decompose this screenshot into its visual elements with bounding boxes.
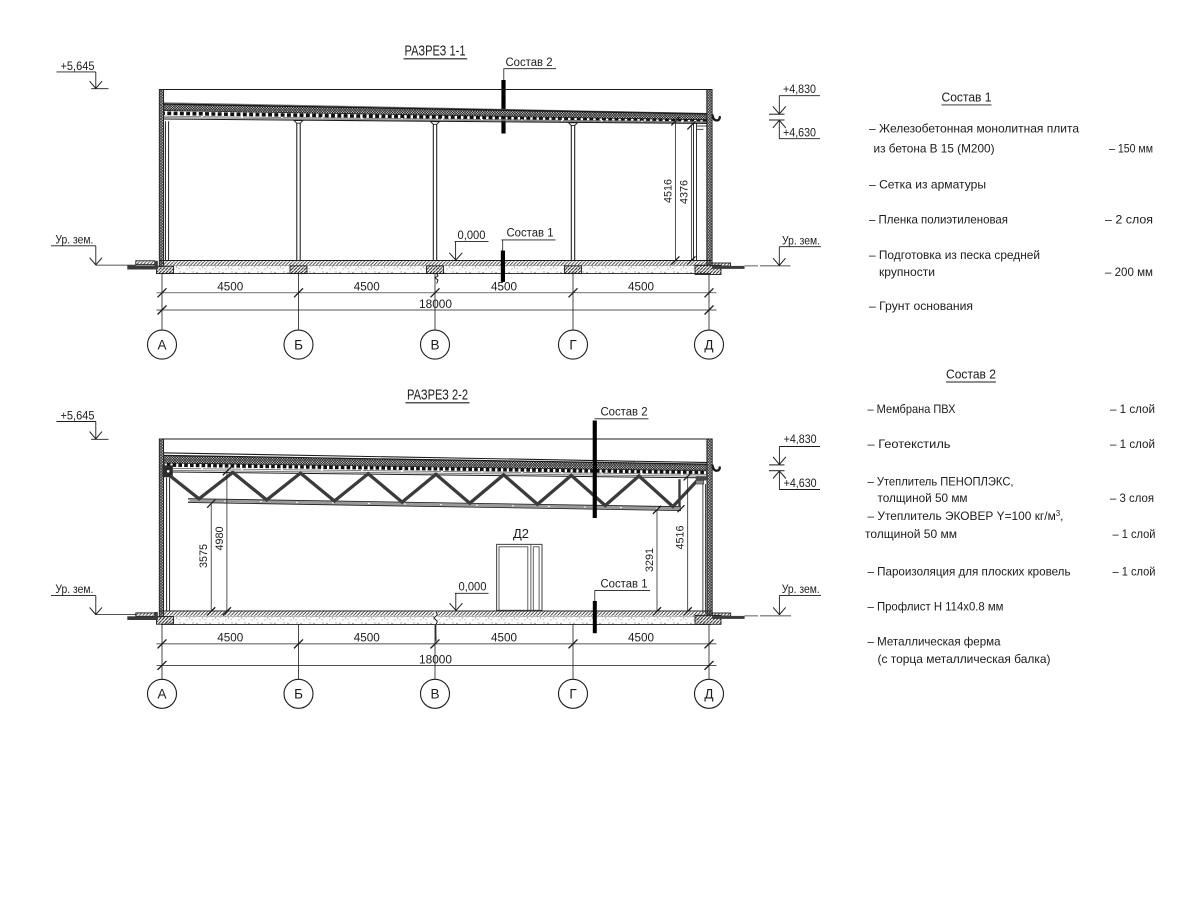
svg-text:4376: 4376 [678,180,690,204]
svg-text:Г: Г [569,687,577,702]
svg-text:+5,645: +5,645 [61,61,95,73]
svg-text:– Утеплитель ПЕНОПЛЭКС,: – Утеплитель ПЕНОПЛЭКС, [868,474,1014,488]
svg-text:4500: 4500 [491,282,517,294]
svg-text:РАЗРЕЗ 2-2: РАЗРЕЗ 2-2 [407,387,468,404]
svg-text:Ур. зем.: Ур. зем. [55,584,93,596]
svg-text:толщиной 50 мм: толщиной 50 мм [865,527,957,541]
svg-text:+4,830: +4,830 [783,84,816,96]
svg-text:– 1 слой: – 1 слой [1113,527,1156,541]
svg-text:– Сетка из арматуры: – Сетка из арматуры [869,178,986,192]
svg-text:Г: Г [569,337,577,352]
svg-text:Ур. зем.: Ур. зем. [55,234,93,246]
svg-text:– 2 слоя: – 2 слоя [1105,213,1153,227]
svg-text:– Профлист Н 114х0.8 мм: – Профлист Н 114х0.8 мм [868,599,1004,613]
svg-text:– Мембрана ПВХ: – Мембрана ПВХ [868,402,956,416]
svg-text:4500: 4500 [628,282,654,294]
svg-text:4980: 4980 [214,527,226,551]
svg-text:– Пленка полиэтиленовая: – Пленка полиэтиленовая [869,213,1008,227]
svg-text:А: А [157,337,166,352]
svg-text:– 200 мм: – 200 мм [1105,265,1153,279]
svg-text:3291: 3291 [644,548,656,572]
svg-text:– 150 мм: – 150 мм [1109,141,1153,155]
svg-text:из бетона В 15 (М200): из бетона В 15 (М200) [874,141,995,155]
svg-text:РАЗРЕЗ 1-1: РАЗРЕЗ 1-1 [405,42,466,59]
svg-text:0,000: 0,000 [458,230,486,242]
svg-text:4500: 4500 [354,282,380,294]
svg-text:– Грунт основания: – Грунт основания [869,299,973,313]
svg-text:4500: 4500 [628,633,654,645]
svg-text:толщиной 50 мм: толщиной 50 мм [878,491,968,505]
svg-text:18000: 18000 [419,654,452,666]
svg-text:Д2: Д2 [513,527,529,541]
svg-text:4500: 4500 [354,633,380,645]
svg-text:+4,630: +4,630 [784,478,817,490]
svg-text:Б: Б [294,687,303,702]
svg-text:4500: 4500 [491,633,517,645]
svg-text:Б: Б [294,337,303,352]
svg-text:– 3 слоя: – 3 слоя [1110,491,1154,505]
svg-text:4500: 4500 [217,282,243,294]
svg-text:– Геотекстиль: – Геотекстиль [868,437,951,451]
svg-text:– Металлическая ферма: – Металлическая ферма [868,634,1001,648]
svg-text:Состав 1: Состав 1 [507,228,554,240]
svg-text:+5,645: +5,645 [61,411,95,423]
svg-text:Состав 2: Состав 2 [601,407,648,419]
svg-text:4500: 4500 [217,633,243,645]
svg-text:18000: 18000 [419,299,452,311]
svg-text:Д: Д [704,687,713,702]
svg-text:4516: 4516 [662,179,674,203]
svg-text:В: В [430,687,439,702]
svg-text:А: А [157,687,166,702]
svg-text:– Утеплитель ЭКОВЕР Y=100 кг/м: – Утеплитель ЭКОВЕР Y=100 кг/м3, [868,509,1064,523]
svg-text:Состав 1: Состав 1 [601,578,648,590]
svg-text:– Подготовка из песка средней: – Подготовка из песка средней [869,248,1040,262]
svg-text:Ур. зем.: Ур. зем. [782,235,820,247]
svg-text:– 1 слой: – 1 слой [1110,437,1155,451]
svg-text:Ур. зем.: Ур. зем. [782,584,820,596]
svg-text:В: В [430,337,439,352]
svg-text:Д: Д [704,337,713,352]
svg-text:– 1 слой: – 1 слой [1110,402,1155,416]
svg-text:4516: 4516 [675,526,687,550]
svg-text:Состав 2: Состав 2 [506,57,553,69]
svg-text:3575: 3575 [198,544,210,568]
svg-text:0,000: 0,000 [459,582,487,594]
svg-text:+4,630: +4,630 [783,127,816,139]
svg-text:крупности: крупности [879,265,935,279]
svg-text:Состав 2: Состав 2 [946,367,996,381]
svg-text:+4,830: +4,830 [784,434,817,446]
svg-text:(с торца металлическая балка): (с торца металлическая балка) [878,652,1051,666]
svg-text:Состав 1: Состав 1 [942,90,992,104]
svg-text:– 1 слой: – 1 слой [1113,564,1156,578]
svg-text:– Железобетонная монолитная п: – Железобетонная монолитная плита [869,121,1079,135]
svg-text:– Пароизоляция для плоских кро: – Пароизоляция для плоских кровель [868,564,1071,578]
